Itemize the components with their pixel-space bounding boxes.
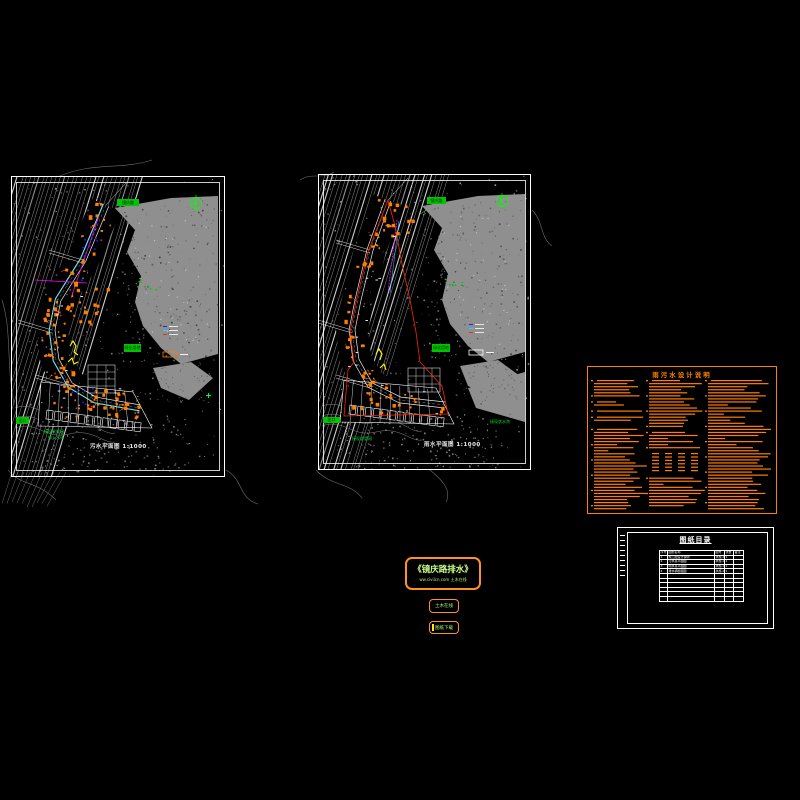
outfall-label-right: 接现状水沟 [490, 419, 510, 425]
road-label-left: 镜庆路 [117, 199, 139, 206]
badge-label: 图纸下载 [435, 625, 453, 631]
exit-label-text: 出口 [19, 419, 27, 423]
drawing-title: 《镜庆路排水》 [407, 563, 479, 575]
area-label-text: 绿化用地 [433, 346, 449, 350]
yellow-mark [432, 624, 434, 631]
drawing-list-table: 序号图纸名称图号张数备注1施工图设计说明水施-0112污水总平面图水施-0213… [659, 550, 744, 602]
table-cell [715, 596, 725, 601]
road-label-text: 镜庆路 [122, 201, 134, 205]
area-label-text: 绿化用地 [125, 346, 141, 350]
exit-label-text: 出口 [328, 418, 336, 422]
site-plan-storm [232, 168, 532, 476]
badge-label: 土木在线 [435, 603, 453, 609]
scale-label-right: 雨水平面图 1:1000 [424, 440, 481, 448]
area-label-left: 绿化用地 [124, 344, 141, 352]
notes-panel: 雨污水设计说明 [587, 366, 777, 514]
scale-label-left: 污水平面图 1:1000 [90, 442, 147, 450]
site-plan-sewage [0, 170, 226, 483]
watermark-badge-2: 图纸下载 [429, 621, 459, 634]
notes-title: 雨污水设计说明 [588, 369, 776, 379]
table-cell [725, 596, 734, 601]
cad-viewport: { "app": {"type": "CAD drawing viewport"… [0, 0, 800, 800]
table-cell [660, 596, 668, 601]
note-label-left-2: 排入水体 [48, 435, 64, 441]
exit-label-left: 出口 [16, 417, 29, 424]
note-label-left-1: 接现状管网 [44, 429, 64, 435]
note-label-right: 接现状管网 [352, 436, 372, 442]
notes-text-lines [588, 367, 776, 513]
area-label-right: 绿化用地 [432, 344, 450, 352]
drawing-title-box: 《镜庆路排水》 ww.civilcn.com 土木在线 [405, 557, 481, 590]
sheet-title: 图纸目录 [618, 535, 773, 545]
table-cell [734, 596, 744, 601]
table-cell [668, 596, 715, 601]
watermark-text: ww.civilcn.com 土木在线 [407, 577, 479, 583]
table-row [660, 596, 744, 601]
road-label-right: 镜庆路 [427, 197, 446, 204]
road-label-text: 镜庆路 [431, 199, 443, 203]
drawing-list-sheet: 图纸目录 序号图纸名称图号张数备注1施工图设计说明水施-0112污水总平面图水施… [617, 527, 774, 629]
exit-label-right: 出口 [323, 417, 340, 423]
watermark-badge-1: 土木在线 [429, 599, 459, 613]
